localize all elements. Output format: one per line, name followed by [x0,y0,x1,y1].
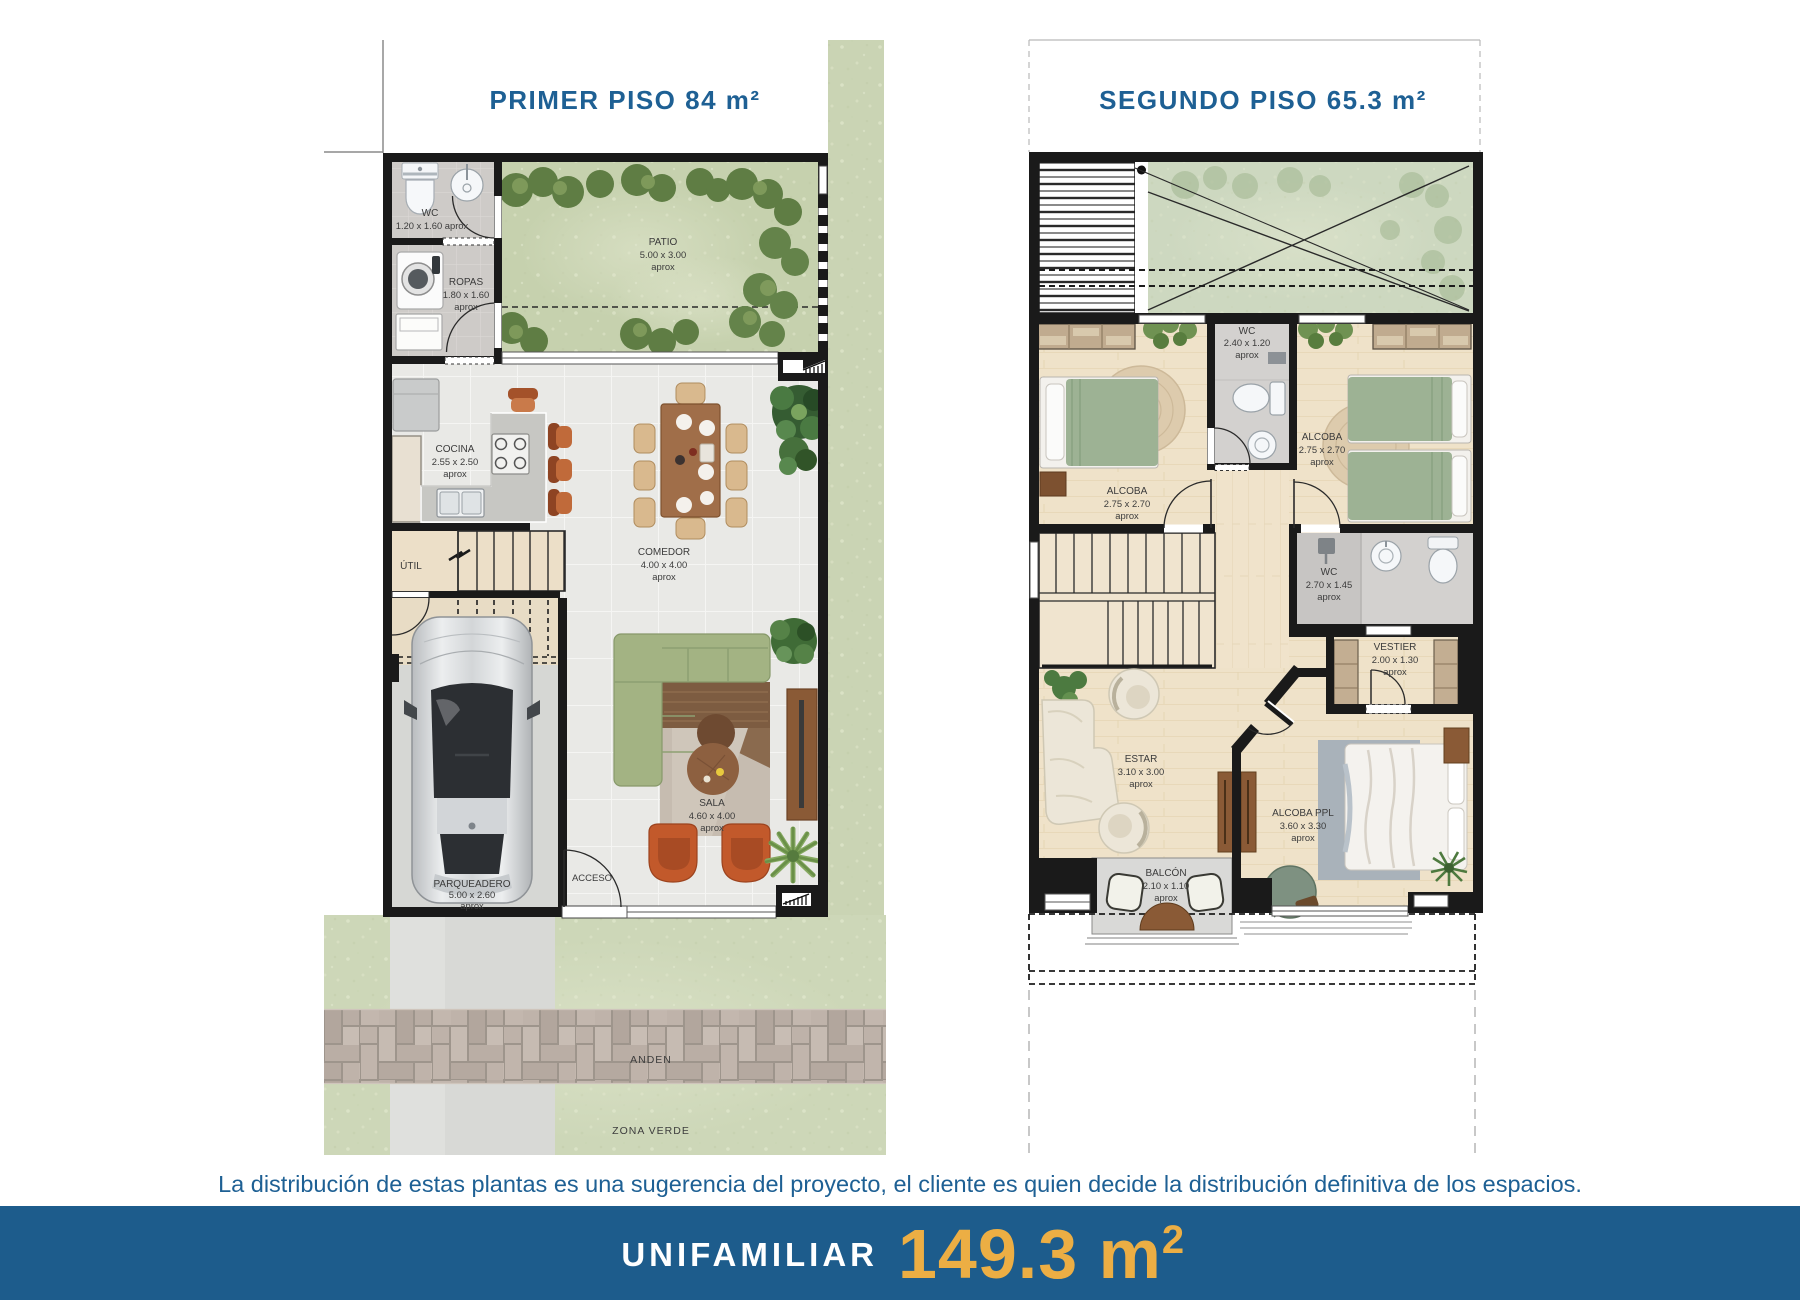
svg-text:La distribución de estas plant: La distribución de estas plantas es una … [218,1171,1582,1197]
svg-text:2.40 x 1.20: 2.40 x 1.20 [1224,337,1270,348]
svg-text:PATIO: PATIO [649,237,678,248]
svg-text:SEGUNDO PISO 65.3 m²: SEGUNDO PISO 65.3 m² [1099,85,1427,115]
svg-text:aprox: aprox [652,571,676,582]
svg-text:aprox: aprox [443,468,467,479]
svg-text:COMEDOR: COMEDOR [638,547,690,558]
svg-text:ROPAS: ROPAS [449,277,484,288]
svg-text:5.00 x 3.00: 5.00 x 3.00 [640,249,686,260]
svg-text:ESTAR: ESTAR [1125,754,1158,765]
svg-text:WC: WC [1239,326,1256,337]
svg-text:2.00 x 1.30: 2.00 x 1.30 [1372,654,1418,665]
svg-text:aprox: aprox [460,900,484,911]
svg-text:ALCOBA: ALCOBA [1107,486,1148,497]
svg-text:5.00 x 2.60: 5.00 x 2.60 [449,889,495,900]
svg-text:ÚTIL: ÚTIL [400,559,422,572]
svg-text:ALCOBA PPL: ALCOBA PPL [1272,808,1334,819]
svg-text:aprox: aprox [1291,832,1315,843]
svg-text:4.00 x 4.00: 4.00 x 4.00 [641,559,687,570]
svg-text:aprox: aprox [1115,510,1139,521]
svg-text:BALCÓN: BALCÓN [1145,866,1186,879]
svg-text:aprox: aprox [651,261,675,272]
svg-text:149.3 m2: 149.3 m2 [898,1215,1185,1293]
svg-text:aprox: aprox [1383,666,1407,677]
svg-text:aprox: aprox [1235,349,1259,360]
svg-text:aprox: aprox [700,822,724,833]
svg-text:WC: WC [1321,567,1338,578]
svg-text:3.60 x 3.30: 3.60 x 3.30 [1280,820,1326,831]
svg-text:aprox: aprox [1154,892,1178,903]
svg-text:2.10 x 1.10: 2.10 x 1.10 [1143,880,1189,891]
svg-text:SALA: SALA [699,798,725,809]
svg-text:PRIMER PISO 84 m²: PRIMER PISO 84 m² [489,85,760,115]
svg-text:2.55 x 2.50: 2.55 x 2.50 [432,456,478,467]
svg-text:ZONA VERDE: ZONA VERDE [612,1125,690,1137]
svg-text:WC: WC [422,208,439,219]
svg-text:VESTIER: VESTIER [1374,642,1417,653]
svg-text:UNIFAMILIAR: UNIFAMILIAR [621,1236,878,1273]
svg-text:1.80 x 1.60: 1.80 x 1.60 [443,289,489,300]
svg-text:aprox: aprox [1317,591,1341,602]
svg-text:aprox: aprox [1310,456,1334,467]
svg-text:ACCESO: ACCESO [572,873,612,884]
svg-text:2.70 x 1.45: 2.70 x 1.45 [1306,579,1352,590]
svg-text:1.20 x 1.60 aprox: 1.20 x 1.60 aprox [396,220,469,231]
svg-text:ALCOBA: ALCOBA [1302,432,1343,443]
svg-text:aprox: aprox [1129,778,1153,789]
svg-text:aprox: aprox [454,301,478,312]
svg-text:4.60 x 4.00: 4.60 x 4.00 [689,810,735,821]
svg-text:3.10 x 3.00: 3.10 x 3.00 [1118,766,1164,777]
svg-text:2.75 x 2.70: 2.75 x 2.70 [1299,444,1345,455]
svg-text:COCINA: COCINA [436,444,475,455]
svg-text:ANDEN: ANDEN [630,1054,672,1066]
svg-text:2.75 x 2.70: 2.75 x 2.70 [1104,498,1150,509]
